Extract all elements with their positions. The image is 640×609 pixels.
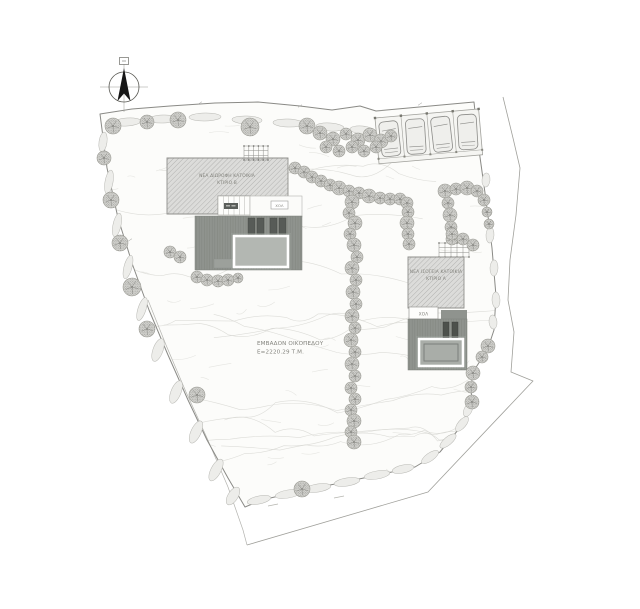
tree [345,195,359,209]
tree [241,118,259,136]
tree [344,333,358,347]
hall-label-building-b: ΧΟΛ [275,204,284,208]
building-b-label-line2: ΚΤΙΡΙΟ Β [217,180,237,186]
tree [465,381,477,393]
tree [347,414,361,428]
tree [476,351,488,363]
tree [349,322,361,334]
tree [123,278,141,296]
building-a-label-line1: ΝΕΑ ΙΣΟΓΕΙΑ ΚΑΤΟΙΚΙΑ [410,269,462,275]
building-a-pool [419,339,463,366]
tree [189,387,205,403]
tree [443,208,457,222]
tree [299,118,315,134]
tree [442,197,454,209]
door-panel [452,322,458,338]
tree [350,274,362,286]
tree [349,346,361,358]
building-a-label-line2: ΚΤΙΡΙΟ Α [426,276,446,282]
tree [482,207,492,217]
tree [358,145,370,157]
tree [345,309,359,323]
tree [466,366,480,380]
tree [222,274,234,286]
tree [362,189,376,203]
tree [484,219,494,229]
tree [174,251,186,263]
tree [201,274,213,286]
tree [349,370,361,382]
tree [465,395,479,409]
north-arrow-icon [100,58,148,113]
tree [333,145,345,157]
tree [467,239,479,251]
building-b-pool [234,236,288,267]
sun-lounger [248,218,255,234]
tree [385,130,397,142]
tree [97,151,111,165]
tree [347,435,361,449]
tree [140,115,154,129]
tree [403,238,415,250]
tree [139,321,155,337]
tree [320,141,332,153]
plot-area-label: ΕΜΒΑΔΟΝ ΟΙΚΟΠΕΔΟΥ [257,341,324,347]
tree [233,273,243,283]
tree [112,235,128,251]
tree [105,118,121,134]
tree [103,192,119,208]
tree [294,481,310,497]
tree [370,141,382,153]
building-b-label-line1: ΝΕΑ ΔΙΩΡΟΦΗ ΚΑΤΟΙΚΙΑ [199,173,255,179]
tree [349,393,361,405]
tree [170,112,186,128]
tree [347,238,361,252]
building-a-roof [408,257,464,308]
site-plan-drawing: ΝΕΑ ΔΙΩΡΟΦΗ ΚΑΤΟΙΚΙΑΚΤΙΡΙΟ ΒΝΕΑ ΙΣΟΓΕΙΑ … [0,0,640,609]
car [405,118,426,154]
tree [346,141,358,153]
tree [340,128,352,140]
door-panel [443,322,449,338]
tree [345,261,359,275]
tree [313,126,327,140]
tree [438,184,452,198]
tree [345,357,359,371]
plot-area-value: Ε=2220.29 Τ.Μ. [257,350,304,356]
building-a-terrace-ext [441,310,467,319]
car [457,114,478,150]
tree [478,194,490,206]
car [430,116,453,153]
tree [345,382,357,394]
building-a [408,242,470,370]
shrub [134,296,149,321]
sun-lounger [257,218,264,234]
hall-label-building-a: ΧΟΛ [419,312,428,317]
site-plan-page: ΝΕΑ ΔΙΩΡΟΦΗ ΚΑΤΟΙΚΙΑΚΤΙΡΙΟ ΒΝΕΑ ΙΣΟΓΕΙΑ … [0,0,640,609]
tree [350,298,362,310]
tree [346,285,360,299]
sun-lounger [270,218,277,234]
tree [446,228,458,240]
sun-lounger [279,218,286,234]
